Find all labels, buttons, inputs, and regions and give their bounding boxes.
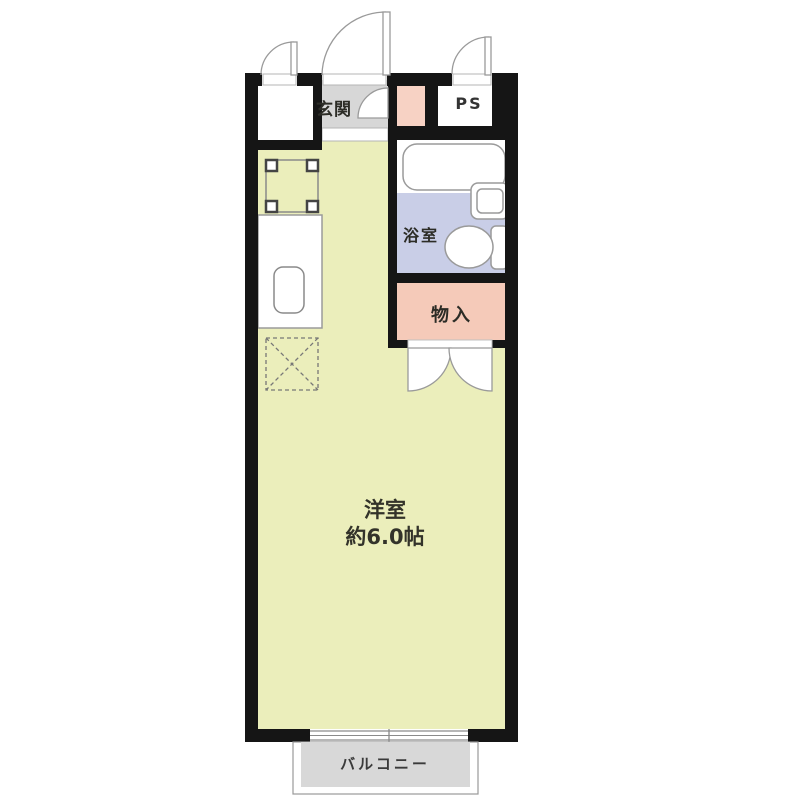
ps-door-arc — [452, 37, 489, 74]
wall — [388, 126, 518, 140]
front-door-arc — [322, 12, 386, 75]
wall-bottom — [468, 729, 518, 742]
floorplan-canvas: 玄関 PS 浴室 物入 洋室 約6.0帖 バルコニー — [0, 0, 800, 800]
shoe-cabinet-floor — [397, 80, 425, 128]
wall — [388, 73, 397, 128]
ps-door-leaf — [485, 37, 491, 75]
stove-burner-icon — [266, 201, 277, 212]
wall-left — [245, 73, 258, 742]
wall — [388, 340, 408, 348]
storage-label: 物入 — [431, 301, 473, 327]
wall-bottom — [245, 729, 310, 742]
stove-burner-icon — [266, 160, 277, 171]
entrance-label: 玄関 — [316, 95, 352, 120]
entry-step — [322, 128, 388, 141]
wall — [388, 273, 518, 283]
stove-burner-icon — [307, 201, 318, 212]
floorplan-drawing — [0, 0, 800, 800]
main-room-name: 洋室 — [300, 497, 470, 524]
threshold — [408, 340, 492, 348]
pipe-space-label: PS — [449, 94, 489, 113]
wall-right — [505, 73, 518, 742]
threshold — [453, 74, 491, 85]
sliding-window — [310, 729, 468, 742]
balcony-label: バルコニー — [318, 753, 452, 774]
kitchen-sink — [274, 267, 304, 313]
wall — [425, 80, 438, 128]
entrance-closet-door-arc — [261, 42, 294, 75]
main-room-size: 約6.0帖 — [300, 524, 470, 551]
wall — [492, 84, 505, 128]
front-door-leaf — [383, 12, 390, 75]
main-room-label: 洋室 約6.0帖 — [300, 497, 470, 551]
threshold — [323, 74, 386, 85]
threshold — [263, 74, 296, 85]
wall — [492, 340, 518, 348]
entrance-closet-floor — [258, 80, 313, 142]
wall — [388, 140, 397, 348]
bathroom-label: 浴室 — [403, 222, 439, 246]
toilet — [445, 226, 493, 268]
wall — [245, 140, 322, 150]
entrance-closet-door-leaf — [291, 42, 297, 75]
stove-burner-icon — [307, 160, 318, 171]
